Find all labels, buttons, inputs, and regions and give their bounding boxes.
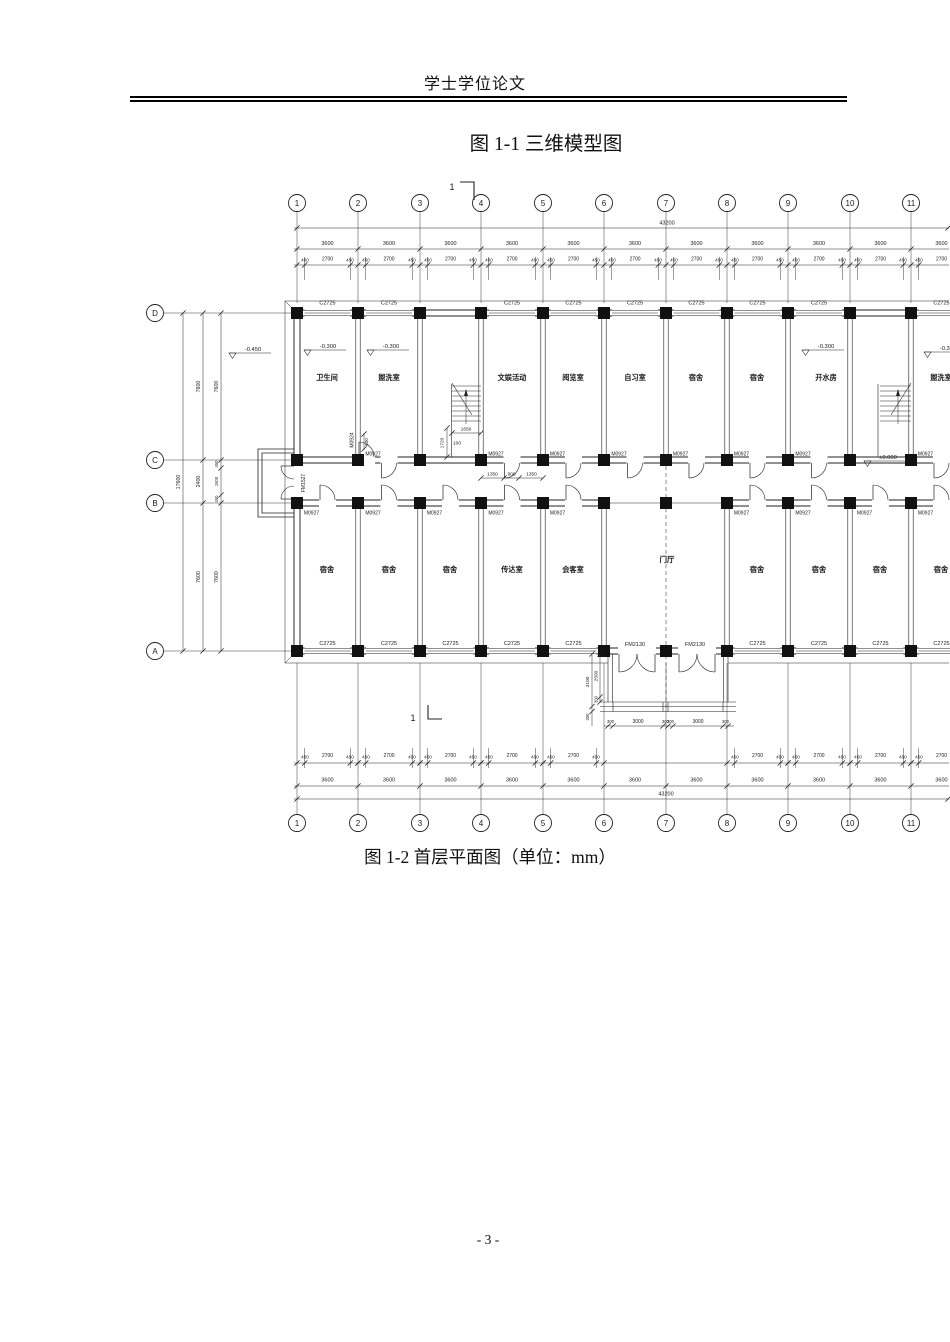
dim-text: 2700 (445, 257, 456, 263)
dim-text: 450 (214, 460, 219, 468)
dim-text: 450 (608, 258, 616, 263)
column (414, 497, 426, 509)
level-value: -0.450 (245, 347, 261, 353)
door-swing-arc (750, 485, 765, 500)
floor-plan-drawing: 11223344556677889910101111DCBA4320036004… (0, 0, 950, 950)
column (291, 645, 303, 657)
dim-text: 7600 (214, 381, 220, 393)
window-label: C2725 (442, 641, 458, 647)
dim-text: 450 (731, 755, 739, 760)
dim-text: 300 (722, 719, 730, 724)
room-label: 卫生间 (316, 373, 338, 382)
column (291, 454, 303, 466)
door-opening (319, 499, 336, 507)
window-label: C2725 (319, 301, 335, 307)
door-swing-arc (628, 463, 643, 478)
dim-text: 450 (424, 755, 432, 760)
dim-text: 3600 (629, 241, 641, 247)
room-label: 宿舍 (750, 565, 765, 574)
door-swing-arc (443, 485, 458, 500)
level-triangle (864, 461, 871, 467)
layer-generated: 11223344556677889910101111DCBA4320036004… (147, 182, 950, 832)
dim-text: 3600 (874, 241, 886, 247)
door-opening (293, 465, 301, 501)
dim-text: 7600 (214, 571, 220, 583)
grid-bubble-label: D (152, 309, 158, 318)
window-label: C2725 (319, 641, 335, 647)
document-page: 学士学位论文 图 1-1 三维模型图 112233445566778899101… (0, 0, 950, 1342)
dim-text: 2700 (875, 753, 886, 759)
dim-text: 3600 (321, 778, 333, 784)
grid-bubble-label: 8 (725, 199, 730, 208)
column (414, 454, 426, 466)
exterior-walls (294, 310, 949, 654)
page-number: - 3 - (13, 1232, 950, 1248)
dim-text: 2700 (752, 257, 763, 263)
window-label: C2725 (504, 301, 520, 307)
door-swing-arc (566, 485, 581, 500)
window-label: C2725 (933, 641, 949, 647)
grid-bubble-label: 7 (664, 199, 669, 208)
column (844, 497, 856, 509)
column (537, 454, 549, 466)
window-label: C2725 (565, 641, 581, 647)
dim-text: 2700 (813, 753, 824, 759)
dim-text: 3600 (506, 778, 518, 784)
dim-text: 3600 (383, 241, 395, 247)
dim-text: 2700 (322, 753, 333, 759)
door-opening (933, 499, 950, 507)
dim-text: 300 (607, 719, 615, 724)
dim-text: 450 (670, 258, 678, 263)
dim-text: 450 (854, 755, 862, 760)
door-label: M0927 (918, 452, 934, 458)
window-label: C2725 (688, 301, 704, 307)
grid-bubble-label: B (152, 499, 157, 508)
dim-text: 3000 (632, 719, 643, 725)
window-label: C2725 (565, 301, 581, 307)
grid-bubble-label: 11 (907, 199, 916, 208)
door-label: M0927 (734, 452, 750, 458)
dim-text: 1500 (214, 476, 219, 486)
column (905, 307, 917, 319)
column (352, 645, 364, 657)
dim-text: 3600 (874, 778, 886, 784)
grid-bubble-label: 9 (786, 819, 791, 828)
door-label: M0927 (734, 511, 750, 517)
grid-bubble-label: 1 (295, 199, 300, 208)
column (414, 645, 426, 657)
door-label: M0927 (918, 511, 934, 517)
grid-bubble-label: 6 (602, 819, 607, 828)
figure2-caption: 图 1-2 首层平面图（单位：mm） (15, 844, 950, 869)
door-opening (504, 456, 521, 464)
level-value: -0.300 (818, 344, 834, 350)
dim-text: 2700 (383, 257, 394, 263)
door-label: M0927 (550, 452, 566, 458)
stair-break-line (891, 383, 911, 415)
dim-text: 1350 (526, 472, 537, 478)
dim-text: 2700 (322, 257, 333, 263)
column (475, 645, 487, 657)
dim-text: 3600 (813, 778, 825, 784)
door-label: M0927 (611, 452, 627, 458)
grid-bubble-label: 5 (541, 819, 546, 828)
dim-text: 43200 (658, 792, 673, 798)
dim-text: 7600 (196, 381, 202, 393)
column (537, 497, 549, 509)
dim-text: 2700 (506, 753, 517, 759)
section-mark (460, 182, 474, 200)
door-swing-arc (934, 485, 949, 500)
column (721, 645, 733, 657)
column (660, 497, 672, 509)
door-label: M0927 (795, 511, 811, 517)
door-label: FM2130 (685, 642, 705, 648)
window-label: C2725 (504, 641, 520, 647)
door-opening (565, 456, 582, 464)
grid-bubble-label: 11 (907, 819, 916, 828)
dim-text: 2700 (383, 753, 394, 759)
door-opening (381, 456, 398, 464)
dim-text: 2400 (196, 476, 202, 488)
dim-text: 3100 (585, 676, 591, 687)
level-value: ±0.000 (879, 455, 897, 461)
dim-text: 2700 (752, 753, 763, 759)
section-mark-label: 1 (410, 713, 415, 723)
grid-bubble-label: 10 (846, 819, 855, 828)
dim-text: 450 (301, 258, 309, 263)
dim-text: 300 (585, 713, 590, 721)
dim-text: 450 (731, 258, 739, 263)
grid-bubble-label: 1 (295, 819, 300, 828)
door-opening (933, 456, 950, 464)
column (782, 645, 794, 657)
door-opening (688, 456, 705, 464)
column (721, 497, 733, 509)
grid-bubble-label: 4 (479, 199, 484, 208)
door-swing-arc (566, 463, 581, 478)
room-label: 开水房 (815, 373, 837, 382)
door-swing-arc (812, 485, 827, 500)
stair-arrow-head (464, 389, 468, 396)
room-label: 宿舍 (873, 565, 888, 574)
door-opening (811, 456, 828, 464)
door-swing-arc (697, 654, 715, 672)
grid-bubble-label: 9 (786, 199, 791, 208)
door-label: M0927 (857, 511, 873, 517)
level-triangle (367, 350, 374, 356)
column (782, 497, 794, 509)
column (660, 454, 672, 466)
grid-bubble-label: 8 (725, 819, 730, 828)
door-swing-arc (505, 485, 520, 500)
door-opening (565, 499, 582, 507)
door-swing-arc (281, 466, 294, 479)
window-label: C2725 (872, 641, 888, 647)
dim-text: 450 (547, 755, 555, 760)
dim-text: 450 (485, 258, 493, 263)
grid-bubble-label: 6 (602, 199, 607, 208)
column (660, 645, 672, 657)
dim-text: 2700 (568, 257, 579, 263)
grid-bubble-label: 2 (356, 819, 361, 828)
dim-text: 450 (362, 258, 370, 263)
column (905, 645, 917, 657)
door-opening (381, 499, 398, 507)
dim-text: 450 (792, 258, 800, 263)
dim-text: 300 (667, 719, 675, 724)
grid-bubble-label: 10 (846, 199, 855, 208)
door-swing-arc (637, 654, 655, 672)
dim-text: 450 (854, 258, 862, 263)
grid-bubble-label: 2 (356, 199, 361, 208)
column (905, 454, 917, 466)
window-label: C2725 (627, 301, 643, 307)
dim-text: 2700 (936, 753, 947, 759)
dim-text: 450 (485, 755, 493, 760)
dim-text: 3600 (690, 241, 702, 247)
door-label: M0927 (550, 511, 566, 517)
dim-text: 3600 (321, 241, 333, 247)
door-opening (872, 499, 889, 507)
door-swing-arc (619, 654, 637, 672)
door-swing-arc (689, 463, 704, 478)
vestibule-outline (258, 449, 294, 517)
door-swing-arc (750, 463, 765, 478)
column (660, 307, 672, 319)
column (475, 307, 487, 319)
grid-bubble-label: A (152, 647, 158, 656)
entry-door-opening (618, 647, 656, 655)
door-label: M0924 (350, 432, 356, 448)
window-label: C2725 (933, 301, 949, 307)
column (598, 307, 610, 319)
level-triangle (802, 350, 809, 356)
column (844, 645, 856, 657)
window-label: C2725 (749, 641, 765, 647)
dim-text: 2700 (629, 257, 640, 263)
dim-text: 2700 (445, 753, 456, 759)
dim-text: 17600 (176, 475, 182, 490)
dim-text: 450 (214, 495, 219, 503)
room-label: 宿舍 (443, 565, 458, 574)
room-label: 文娱活动 (497, 373, 527, 382)
door-label: M0927 (365, 511, 381, 517)
dim-text: 2500 (594, 670, 600, 681)
room-label: 盥洗室 (930, 373, 950, 382)
door-swing-arc (382, 485, 397, 500)
dim-text: 900 (507, 472, 515, 478)
stair-arrow-head (896, 389, 900, 396)
section-mark-label: 1 (449, 182, 454, 192)
door-swing-arc (873, 485, 888, 500)
door-opening (627, 456, 644, 464)
room-label: 自习室 (624, 373, 646, 382)
column (782, 307, 794, 319)
dim-text: 450 (792, 755, 800, 760)
door-swing-arc (320, 485, 335, 500)
column (598, 497, 610, 509)
room-label: 宿舍 (689, 373, 704, 382)
door-label: M0927 (304, 511, 320, 517)
window-label: C2725 (381, 641, 397, 647)
dim-text: 3600 (444, 778, 456, 784)
door-label: FM2130 (625, 642, 645, 648)
dim-text: 3600 (751, 778, 763, 784)
dim-text: 7600 (196, 571, 202, 583)
dim-text: 1720 (440, 437, 446, 448)
door-swing-arc (382, 463, 397, 478)
room-label: 宿舍 (750, 373, 765, 382)
dim-text: 3600 (383, 778, 395, 784)
dim-text: 450 (915, 755, 923, 760)
column (844, 307, 856, 319)
door-label: M0927 (488, 452, 504, 458)
door-swing-arc (934, 463, 949, 478)
column (721, 307, 733, 319)
column (844, 454, 856, 466)
column (721, 454, 733, 466)
door-label: M0927 (795, 452, 811, 458)
room-label: 宿舍 (812, 565, 827, 574)
column (475, 497, 487, 509)
column (782, 454, 794, 466)
dim-text: 3600 (935, 778, 947, 784)
room-label: 阅览室 (562, 373, 584, 382)
column (537, 645, 549, 657)
dim-text: 2700 (936, 257, 947, 263)
door-opening (504, 499, 521, 507)
dim-text: 450 (424, 258, 432, 263)
column (291, 497, 303, 509)
level-triangle (924, 352, 931, 358)
dim-text: 3000 (692, 719, 703, 725)
column (352, 497, 364, 509)
grid-bubble-label: 4 (479, 819, 484, 828)
dim-text: 2700 (813, 257, 824, 263)
room-label: 会客室 (562, 565, 584, 574)
room-label: 门厅 (660, 554, 675, 564)
room-label: 宿舍 (934, 565, 949, 574)
dim-text: 3600 (444, 241, 456, 247)
door-opening (442, 499, 459, 507)
room-label: 传达室 (500, 565, 523, 574)
door-label: FM1527 (301, 474, 307, 493)
door-label: M0927 (673, 452, 689, 458)
dim-text: 2700 (506, 257, 517, 263)
grid-bubble-label: 3 (418, 819, 423, 828)
stair-break-line (452, 383, 472, 415)
door-label: M0927 (427, 511, 443, 517)
dim-text: 3600 (567, 241, 579, 247)
grid-bubble-label: 3 (418, 199, 423, 208)
dim-text: 3600 (935, 241, 947, 247)
dim-text: 1650 (461, 427, 472, 433)
column (475, 454, 487, 466)
column (352, 307, 364, 319)
grid-bubble-label: 7 (664, 819, 669, 828)
window-label: C2725 (811, 641, 827, 647)
level-triangle (229, 353, 236, 359)
door-opening (749, 499, 766, 507)
dim-text: 1350 (487, 472, 498, 478)
door-opening (749, 456, 766, 464)
porch-steps (600, 654, 736, 712)
room-label: 宿舍 (382, 565, 397, 574)
window-label: C2725 (381, 301, 397, 307)
stairwell-walls (452, 384, 879, 457)
section-mark (428, 705, 442, 719)
dim-text: 43200 (659, 221, 674, 227)
door-swing-arc (679, 654, 697, 672)
dim-text: 600 (364, 438, 369, 446)
room-label: 盥洗室 (378, 373, 400, 382)
level-triangle (304, 350, 311, 356)
dim-text: 300 (594, 695, 599, 703)
column (905, 497, 917, 509)
column (414, 307, 426, 319)
door-swing-arc (812, 463, 827, 478)
window-label: C2725 (811, 301, 827, 307)
dim-text: 2700 (568, 753, 579, 759)
dim-text: 3600 (629, 778, 641, 784)
room-label: 宿舍 (320, 565, 335, 574)
door-opening (811, 499, 828, 507)
grid-bubble-label: 5 (541, 199, 546, 208)
level-value: -0.300 (320, 344, 336, 350)
dim-text: 100 (453, 441, 461, 447)
dim-text: 450 (362, 755, 370, 760)
column (352, 454, 364, 466)
dim-text: 3600 (690, 778, 702, 784)
overhang-outline (285, 301, 949, 663)
dim-text: 450 (547, 258, 555, 263)
dim-text: 3600 (751, 241, 763, 247)
dim-text: 2700 (691, 257, 702, 263)
column (537, 307, 549, 319)
level-value: -0.300 (940, 346, 950, 352)
dim-text: 3600 (813, 241, 825, 247)
level-value: -0.300 (383, 344, 399, 350)
entry-door-opening (678, 647, 716, 655)
grid-bubble-label: C (152, 456, 158, 465)
window-label: C2725 (749, 301, 765, 307)
column (598, 454, 610, 466)
dim-text: 3600 (567, 778, 579, 784)
dim-text: 450 (915, 258, 923, 263)
dim-text: 2700 (875, 257, 886, 263)
column (291, 307, 303, 319)
dim-text: 3600 (506, 241, 518, 247)
dim-text: 450 (301, 755, 309, 760)
door-label: M0927 (488, 511, 504, 517)
